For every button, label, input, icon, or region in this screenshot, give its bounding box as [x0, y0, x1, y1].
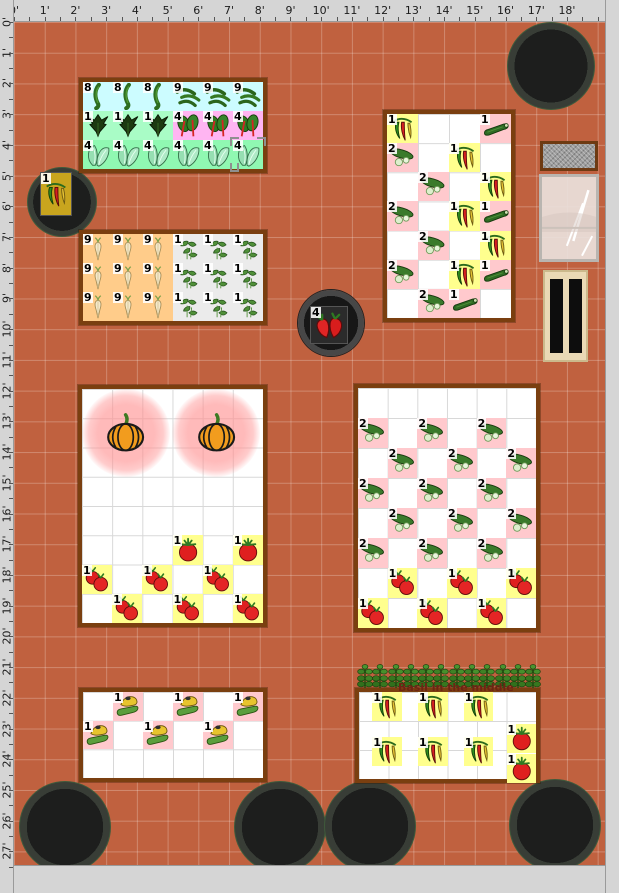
plant-tomato[interactable]: 1 — [233, 535, 263, 564]
plant-cucumber[interactable]: 2 — [358, 478, 388, 508]
plant-cucumber[interactable]: 2 — [387, 143, 418, 172]
plant-bean[interactable]: 8 — [113, 82, 143, 111]
plant-lettuce[interactable]: 4 — [233, 140, 263, 169]
plant-quantity: 2 — [447, 448, 457, 459]
plant-pepper[interactable]: 1 — [464, 737, 494, 766]
ruler-top: 0'1'2'3'4'5'6'7'8'9'10'11'12'13'14'15'16… — [0, 0, 619, 22]
plant-zucchini[interactable]: 1 — [449, 289, 480, 318]
plant-tomato[interactable]: 1 — [507, 724, 537, 753]
board-black-1 — [550, 279, 563, 353]
ruler-label: 14' — [436, 4, 453, 17]
ruler-tick — [9, 222, 13, 223]
plant-bean[interactable]: 8 — [83, 82, 113, 111]
plant-lettuce[interactable]: 4 — [143, 140, 173, 169]
ruler-tick — [9, 729, 13, 730]
plant-pepper[interactable]: 1 — [372, 692, 402, 721]
plant-quantity: 1 — [449, 289, 459, 300]
ruler-tick — [9, 283, 13, 284]
selection-handle[interactable] — [230, 163, 239, 172]
plant-chard[interactable]: 4 — [173, 111, 203, 140]
plant-cucumber[interactable]: 2 — [418, 289, 449, 318]
plant-tomato-pair[interactable]: 1 — [82, 565, 112, 594]
ruler-tick — [9, 790, 13, 791]
plant-quantity: 2 — [506, 448, 516, 459]
ruler-tick — [9, 836, 13, 837]
round-pot-bottom-mid[interactable] — [325, 781, 415, 871]
plant-cucumber[interactable]: 2 — [447, 508, 477, 538]
plant-lettuce[interactable]: 4 — [83, 140, 113, 169]
plant-quantity: 1 — [480, 172, 490, 183]
plant-quantity: 1 — [449, 260, 459, 271]
ruler-tick — [9, 37, 13, 38]
plant-quantity: 2 — [358, 478, 368, 489]
plant-cucumber[interactable]: 2 — [477, 478, 507, 508]
plant-squash[interactable]: 1 — [83, 721, 113, 750]
plant-lettuce[interactable]: 4 — [203, 140, 233, 169]
ruler-tick — [152, 17, 153, 21]
ruler-label: 5' — [163, 4, 173, 17]
ruler-tick — [9, 421, 13, 422]
plant-quantity: 9 — [203, 82, 213, 93]
plant-parsnip[interactable]: 9 — [143, 234, 173, 263]
plant-basil[interactable] — [372, 661, 387, 690]
plant-pepper[interactable]: 1 — [418, 692, 448, 721]
plant-quantity: 1 — [173, 692, 183, 703]
plant-quantity: 9 — [113, 263, 123, 274]
compost-bin[interactable] — [540, 141, 598, 171]
ruler-tick — [9, 821, 13, 822]
plant-pepper[interactable]: 1 — [449, 143, 480, 172]
ruler-tick — [9, 130, 13, 131]
ruler-tick — [9, 867, 13, 868]
ruler-tick — [9, 667, 13, 668]
plant-pepper[interactable]: 1 — [418, 737, 448, 766]
ruler-tick — [9, 452, 13, 453]
plant-tomato-pair[interactable]: 1 — [417, 598, 447, 628]
lumber-boards[interactable] — [543, 270, 588, 362]
plant-quantity: 1 — [41, 173, 51, 184]
plant-squash[interactable]: 1 — [203, 721, 233, 750]
ruler-tick — [9, 160, 13, 161]
ruler-tick — [521, 17, 522, 21]
ruler-tick — [275, 17, 276, 21]
plant-quantity: 2 — [477, 538, 487, 549]
plant-cucumber[interactable]: 2 — [477, 418, 507, 448]
plant-quantity: 1 — [388, 568, 398, 579]
plant-strawberry[interactable]: 4 — [310, 306, 348, 344]
plant-quantity: 1 — [173, 234, 183, 245]
plant-kale[interactable]: 1 — [143, 111, 173, 140]
plant-tomato-pair[interactable]: 1 — [233, 594, 263, 623]
plant-quantity: 1 — [447, 568, 457, 579]
plant-quantity: 9 — [113, 234, 123, 245]
plant-pepper[interactable]: 1 — [40, 172, 72, 216]
plant-parsnip[interactable]: 9 — [83, 292, 113, 321]
ruler-label: 4' — [132, 4, 142, 17]
ruler-label: 12' — [374, 4, 391, 17]
plant-pepper[interactable]: 1 — [480, 172, 511, 201]
ruler-tick — [567, 17, 568, 21]
plant-quantity: 1 — [233, 263, 243, 274]
round-pot-bottom-left[interactable] — [20, 782, 110, 872]
plant-quantity: 1 — [82, 565, 92, 576]
plant-quantity: 1 — [449, 143, 459, 154]
ruler-tick — [9, 636, 13, 637]
plant-cilantro[interactable]: 1 — [233, 292, 263, 321]
plant-tomato-pair[interactable]: 1 — [112, 594, 142, 623]
plant-quantity: 8 — [143, 82, 153, 93]
plant-quantity: 1 — [480, 260, 490, 271]
ruler-tick — [9, 805, 13, 806]
ruler-tick — [229, 17, 230, 21]
ruler-tick — [9, 590, 13, 591]
ruler-tick — [9, 114, 13, 115]
ruler-tick — [306, 17, 307, 21]
plant-lettuce[interactable]: 4 — [113, 140, 143, 169]
ruler-tick — [9, 437, 13, 438]
plant-cucumber[interactable]: 2 — [418, 172, 449, 201]
plant-zucchini[interactable]: 1 — [480, 260, 511, 289]
ruler-tick — [9, 191, 13, 192]
ruler-tick — [122, 17, 123, 21]
ruler-label: 6' — [193, 4, 203, 17]
plant-cucumber[interactable]: 2 — [477, 538, 507, 568]
plant-cilantro[interactable]: 1 — [173, 263, 203, 292]
plant-pepper[interactable]: 1 — [449, 260, 480, 289]
plant-quantity: 2 — [418, 231, 428, 242]
ruler-tick — [9, 759, 13, 760]
plant-cucumber[interactable]: 2 — [388, 508, 418, 538]
plant-quantity: 9 — [143, 292, 153, 303]
plant-zucchini[interactable]: 1 — [480, 201, 511, 230]
ruler-tick — [398, 17, 399, 21]
plant-quantity: 1 — [203, 234, 213, 245]
ruler-tick — [9, 53, 13, 54]
plant-bean[interactable]: 8 — [143, 82, 173, 111]
plant-kale[interactable]: 1 — [113, 111, 143, 140]
ruler-tick — [29, 17, 30, 21]
plant-pepper[interactable]: 1 — [372, 737, 402, 766]
plant-parsnip[interactable]: 9 — [143, 292, 173, 321]
ruler-tick — [337, 17, 338, 21]
ruler-tick — [9, 621, 13, 622]
ruler-label: 1' — [40, 4, 50, 17]
plant-tomato-pair[interactable]: 1 — [142, 565, 172, 594]
plant-cucumber[interactable]: 2 — [447, 448, 477, 478]
plant-quantity: 1 — [507, 754, 517, 765]
ruler-label: 18' — [558, 4, 575, 17]
plant-quantity: 9 — [233, 82, 243, 93]
plant-quantity: 2 — [417, 478, 427, 489]
plant-quantity: 9 — [83, 292, 93, 303]
plant-quantity: 1 — [372, 737, 382, 748]
selection-handle[interactable] — [230, 137, 239, 146]
plant-chard[interactable]: 4 — [233, 111, 263, 140]
plant-quantity: 2 — [506, 508, 516, 519]
plant-cucumber[interactable]: 2 — [358, 538, 388, 568]
ruler-tick — [75, 17, 76, 21]
plant-quantity: 4 — [173, 140, 183, 151]
ruler-tick — [9, 375, 13, 376]
plant-quantity: 4 — [311, 307, 321, 318]
plant-tomato-pair[interactable]: 1 — [477, 598, 507, 628]
plant-quantity: 2 — [358, 418, 368, 429]
plant-quantity: 2 — [417, 538, 427, 549]
ruler-left: 0'1'2'3'4'5'6'7'8'9'10'11'12'13'14'15'16… — [0, 0, 14, 893]
ruler-tick — [413, 17, 414, 21]
plant-quantity: 1 — [480, 114, 490, 125]
plant-cilantro[interactable]: 1 — [173, 292, 203, 321]
plant-tomato[interactable]: 1 — [507, 754, 537, 783]
ruler-tick — [9, 851, 13, 852]
ruler-label: 9' — [285, 4, 295, 17]
plant-quantity: 2 — [418, 172, 428, 183]
plant-parsnip[interactable]: 9 — [113, 263, 143, 292]
plant-quantity: 1 — [143, 721, 153, 732]
plant-squash[interactable]: 1 — [113, 692, 143, 721]
plant-lettuce[interactable]: 4 — [173, 140, 203, 169]
plant-cucumber[interactable]: 2 — [388, 448, 418, 478]
ruler-tick — [444, 17, 445, 21]
plant-quantity: 4 — [83, 140, 93, 151]
plant-quantity: 2 — [417, 418, 427, 429]
ruler-tick — [429, 17, 430, 21]
ruler-tick — [536, 17, 537, 21]
plant-quantity: 1 — [417, 598, 427, 609]
ruler-tick — [9, 83, 13, 84]
ruler-tick — [9, 652, 13, 653]
ruler-tick — [9, 268, 13, 269]
plant-cucumber[interactable]: 2 — [417, 478, 447, 508]
plant-chard[interactable]: 4 — [203, 111, 233, 140]
plant-quantity: 1 — [203, 292, 213, 303]
ruler-bottom: 0'1'2'3'4'5'6'7'8'9'10'11'12'13'14'15'16… — [0, 865, 619, 893]
ruler-tick — [9, 329, 13, 330]
plant-runner-bean[interactable]: 9 — [233, 82, 263, 111]
plant-quantity: 9 — [143, 234, 153, 245]
ruler-tick — [9, 22, 13, 23]
plant-basil[interactable] — [525, 661, 540, 690]
plant-tomato-pair[interactable]: 1 — [447, 568, 477, 598]
plant-quantity: 2 — [447, 508, 457, 519]
plant-cilantro[interactable]: 1 — [203, 263, 233, 292]
plant-quantity: 2 — [477, 418, 487, 429]
ruler-tick — [9, 406, 13, 407]
plant-quantity: 1 — [418, 737, 428, 748]
plant-quantity: 2 — [477, 478, 487, 489]
cold-frame[interactable] — [539, 174, 599, 262]
ruler-tick — [490, 17, 491, 21]
ruler-tick — [9, 252, 13, 253]
plant-quantity: 1 — [173, 594, 183, 605]
board-black-2 — [569, 279, 582, 353]
ruler-tick — [9, 514, 13, 515]
plant-squash[interactable]: 1 — [143, 721, 173, 750]
plant-pepper[interactable]: 1 — [464, 692, 494, 721]
plant-quantity: 1 — [233, 535, 243, 546]
plant-cilantro[interactable]: 1 — [173, 234, 203, 263]
ruler-tick — [198, 17, 199, 21]
ruler-label: 13' — [405, 4, 422, 17]
ruler-tick — [9, 744, 13, 745]
round-pot-bottom-right[interactable] — [510, 780, 600, 870]
plant-quantity: 2 — [358, 538, 368, 549]
ruler-tick — [244, 17, 245, 21]
round-pot-top-right[interactable] — [508, 23, 594, 109]
plant-quantity: 1 — [449, 201, 459, 212]
plant-quantity: 4 — [203, 111, 213, 122]
plant-cucumber[interactable]: 2 — [506, 508, 536, 538]
ruler-tick — [137, 17, 138, 21]
ruler-tick — [168, 17, 169, 21]
plant-quantity: 1 — [477, 598, 487, 609]
plant-quantity: 1 — [464, 737, 474, 748]
plant-quantity: 1 — [113, 111, 123, 122]
plant-cucumber[interactable]: 2 — [417, 538, 447, 568]
plant-tomato[interactable]: 1 — [173, 535, 203, 564]
plant-quantity: 1 — [142, 565, 152, 576]
plant-quantity: 4 — [203, 140, 213, 151]
plant-cilantro[interactable]: 1 — [233, 234, 263, 263]
plant-quantity: 4 — [113, 140, 123, 151]
plant-pepper[interactable]: 1 — [449, 201, 480, 230]
ruler-tick — [9, 345, 13, 346]
ruler-right: 0'1'2'3'4'5'6'7'8'9'10'11'12'13'14'15'16… — [605, 0, 619, 893]
ruler-tick — [9, 314, 13, 315]
plant-pumpkin[interactable] — [194, 411, 239, 455]
plant-tomato-pair[interactable]: 1 — [506, 568, 536, 598]
ruler-tick — [9, 391, 13, 392]
plant-quantity: 4 — [233, 111, 243, 122]
ruler-label: 7' — [224, 4, 234, 17]
plant-parsnip[interactable]: 9 — [113, 234, 143, 263]
ruler-tick — [9, 99, 13, 100]
plant-squash[interactable]: 1 — [233, 692, 263, 721]
ruler-label: 15' — [466, 4, 483, 17]
plant-quantity: 4 — [143, 140, 153, 151]
plant-tomato-pair[interactable]: 1 — [388, 568, 418, 598]
ruler-tick — [383, 17, 384, 21]
plant-quantity: 8 — [83, 82, 93, 93]
plant-quantity: 9 — [173, 82, 183, 93]
garden-planner-canvas: 0'1'2'3'4'5'6'7'8'9'10'11'12'13'14'15'16… — [0, 0, 619, 893]
plant-quantity: 1 — [233, 234, 243, 245]
ruler-tick — [9, 467, 13, 468]
plant-cucumber[interactable]: 2 — [387, 260, 418, 289]
plant-parsnip[interactable]: 9 — [113, 292, 143, 321]
ruler-tick — [260, 17, 261, 21]
plant-parsnip[interactable]: 9 — [143, 263, 173, 292]
plant-quantity: 1 — [173, 535, 183, 546]
ruler-tick — [214, 17, 215, 21]
plant-cucumber[interactable]: 2 — [418, 231, 449, 260]
ruler-tick — [9, 498, 13, 499]
ruler-tick — [506, 17, 507, 21]
plant-kale[interactable]: 1 — [83, 111, 113, 140]
ruler-tick — [9, 145, 13, 146]
plant-pepper[interactable]: 1 — [480, 231, 511, 260]
plant-runner-bean[interactable]: 9 — [173, 82, 203, 111]
plant-cilantro[interactable]: 1 — [203, 234, 233, 263]
plant-pepper[interactable]: 1 — [387, 114, 418, 143]
ruler-tick — [9, 698, 13, 699]
ruler-tick — [367, 17, 368, 21]
ruler-label: 17' — [528, 4, 545, 17]
ruler-tick — [9, 713, 13, 714]
plant-quantity: 2 — [388, 508, 398, 519]
ruler-tick — [9, 176, 13, 177]
plant-quantity: 9 — [113, 292, 123, 303]
text-annotation-basil[interactable]: Basil in the middle — [398, 681, 514, 694]
plant-quantity: 1 — [112, 594, 122, 605]
plant-cilantro[interactable]: 1 — [233, 263, 263, 292]
ruler-label: 11' — [343, 4, 360, 17]
round-pot-bottom-mid-left[interactable] — [235, 782, 325, 872]
plant-quantity: 1 — [173, 292, 183, 303]
plant-cucumber[interactable]: 2 — [387, 201, 418, 230]
ruler-tick — [475, 17, 476, 21]
ruler-label: 8' — [255, 4, 265, 17]
plant-squash[interactable]: 1 — [173, 692, 203, 721]
plant-quantity: 2 — [388, 448, 398, 459]
ruler-tick — [352, 17, 353, 21]
plant-pumpkin[interactable] — [103, 411, 148, 455]
plant-cucumber[interactable]: 2 — [506, 448, 536, 478]
plant-cilantro[interactable]: 1 — [203, 292, 233, 321]
plant-quantity: 9 — [143, 263, 153, 274]
ruler-tick — [91, 17, 92, 21]
plant-quantity: 1 — [506, 568, 516, 579]
ruler-tick — [321, 17, 322, 21]
plant-tomato-pair[interactable]: 1 — [358, 598, 388, 628]
plant-parsnip[interactable]: 9 — [83, 263, 113, 292]
ruler-tick — [290, 17, 291, 21]
plant-quantity: 1 — [358, 598, 368, 609]
plant-tomato-pair[interactable]: 1 — [173, 594, 203, 623]
ruler-tick — [60, 17, 61, 21]
ruler-tick — [9, 68, 13, 69]
ruler-tick — [9, 544, 13, 545]
plant-zucchini[interactable]: 1 — [480, 114, 511, 143]
ruler-tick — [9, 529, 13, 530]
plant-quantity: 8 — [113, 82, 123, 93]
plant-quantity: 1 — [143, 111, 153, 122]
plant-quantity: 2 — [387, 143, 397, 154]
selection-handle[interactable] — [257, 137, 266, 146]
ruler-tick — [45, 17, 46, 21]
plant-quantity: 1 — [203, 721, 213, 732]
plant-basil[interactable] — [357, 661, 372, 690]
plant-cucumber[interactable]: 2 — [358, 418, 388, 448]
plant-quantity: 1 — [480, 201, 490, 212]
plant-quantity: 1 — [83, 721, 93, 732]
plant-quantity: 1 — [113, 692, 123, 703]
plant-cucumber[interactable]: 2 — [417, 418, 447, 448]
ruler-label: 10' — [313, 4, 330, 17]
plant-parsnip[interactable]: 9 — [83, 234, 113, 263]
plant-quantity: 1 — [203, 565, 213, 576]
ruler-label: 2' — [70, 4, 80, 17]
glass-pane-icon — [542, 177, 596, 259]
plant-tomato-pair[interactable]: 1 — [203, 565, 233, 594]
ruler-tick — [9, 775, 13, 776]
ruler-tick — [106, 17, 107, 21]
ruler-tick — [9, 560, 13, 561]
plant-quantity: 2 — [418, 289, 428, 300]
ruler-tick — [552, 17, 553, 21]
ruler-tick — [9, 298, 13, 299]
plant-runner-bean[interactable]: 9 — [203, 82, 233, 111]
